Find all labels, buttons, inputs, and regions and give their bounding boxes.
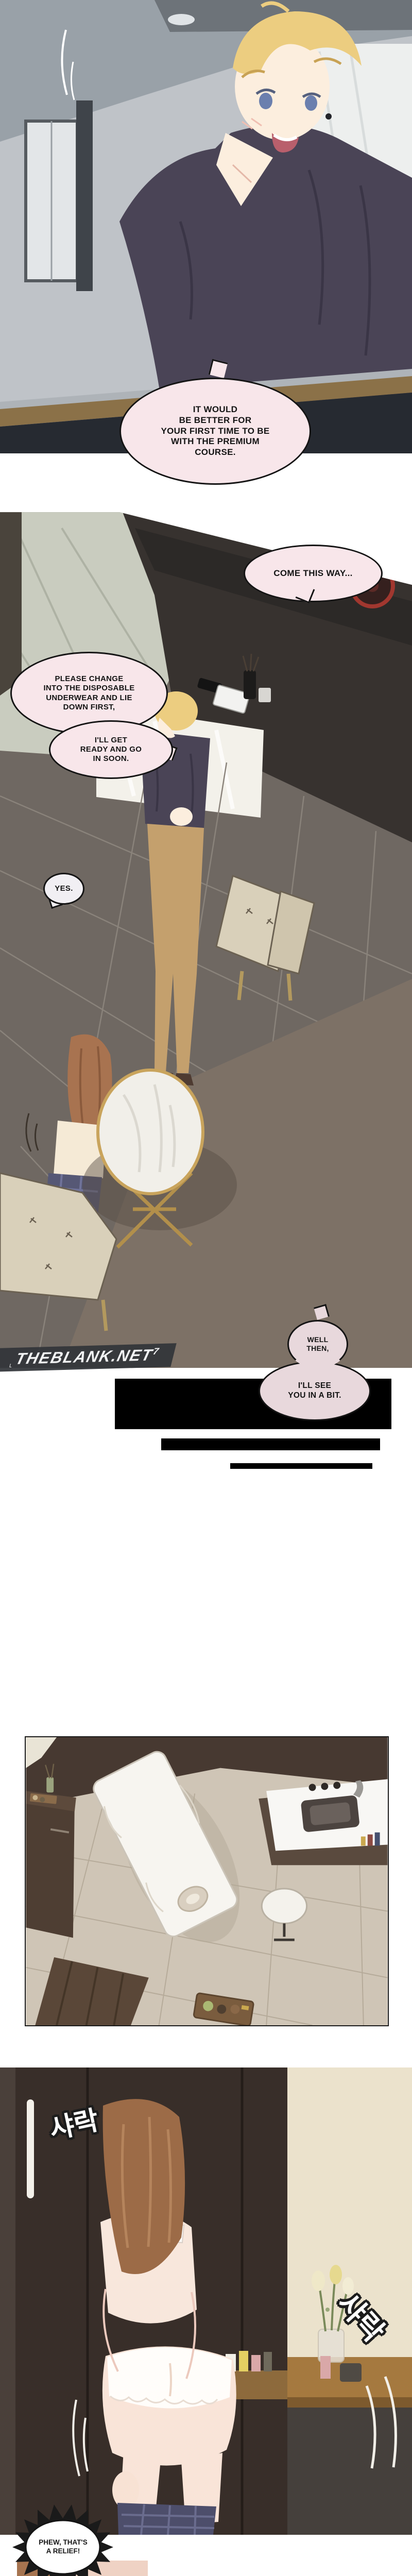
diffuser [244, 670, 256, 699]
man-eye-left [259, 93, 272, 109]
diffuser-bottle [46, 1777, 54, 1792]
stool [262, 1889, 306, 1924]
censor-bar-3 [230, 1463, 372, 1469]
earring [325, 113, 332, 120]
webtoon-page: ˪THEBLANK.NET7 IT WOULD BE BETTER FOR YO… [0, 0, 412, 2576]
lower-wall-right [287, 2408, 412, 2535]
panel-treatment-room [0, 507, 412, 1368]
door-handle [27, 2099, 34, 2198]
jar [340, 2363, 362, 2382]
ceiling-light [168, 14, 195, 25]
plaid-skirt-knees [117, 2503, 216, 2535]
wall-column [76, 100, 93, 291]
standing-man-hand [170, 807, 193, 826]
panel-massage-room [25, 1736, 389, 2026]
speech-bubble-get-ready: I'LL GET READY AND GO IN SOON. [49, 720, 173, 779]
speech-bubble-well-then: WELL THEN, [287, 1320, 348, 1368]
speech-bubble-premium-course: IT WOULD BE BETTER FOR YOUR FIRST TIME T… [119, 378, 311, 485]
man-eye-right [305, 95, 317, 111]
speech-bubble-yes: YES. [43, 873, 84, 905]
vanity-sink [259, 1779, 387, 1865]
candle [320, 2356, 331, 2379]
burst-text-phew: PHEW, THAT'S A RELIEF! [15, 2529, 111, 2566]
watermark-text: ˪THEBLANK.NET7 [8, 1345, 161, 1369]
speech-bubble-see-you: I'LL SEE YOU IN A BIT. [259, 1361, 371, 1421]
censor-bar-2 [161, 1438, 380, 1450]
hand-left [112, 2471, 139, 2509]
light-switch [259, 688, 271, 702]
